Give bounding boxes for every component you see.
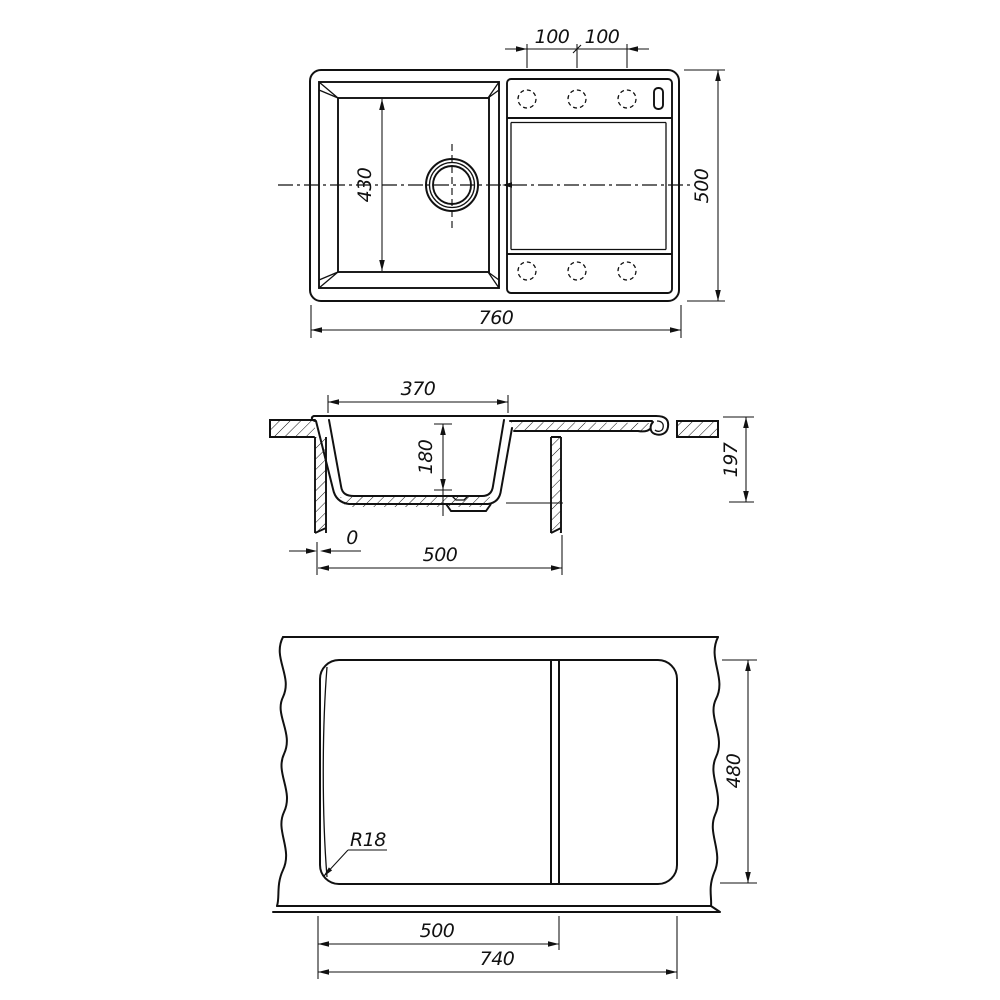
dim-hole-pitch-left: 100 [535,26,570,48]
dim-cabinet-width: 500 [423,544,458,566]
cutout-view: R18 480 500 740 [273,637,757,979]
dim-cutout-width: 740 [480,948,515,970]
overflow-slot [654,88,663,109]
technical-drawing-canvas: 100 100 430 500 760 [0,0,1000,1000]
countertop-outline [273,637,720,912]
break-line-left [277,637,287,906]
dim-divider-offset: 500 [420,920,455,942]
top-view: 100 100 430 500 760 [278,26,725,338]
dim-corner-radius: R18 [350,829,386,851]
break-line-right [711,637,720,906]
cutout-dimensions: 480 500 740 [318,660,757,979]
sink-section-profile [312,416,668,511]
cutout-divider [551,661,559,883]
radius-callout: R18 [323,829,387,877]
drain-hole [426,144,478,228]
dim-edge-offset: 0 [346,527,358,549]
top-view-dimensions: 100 100 430 500 760 [311,26,725,338]
dim-overall-depth: 500 [691,168,713,203]
dim-overall-length: 760 [479,307,514,329]
cutout-left-edge-detail [323,667,327,877]
section-view: 370 180 197 0 500 [270,378,754,575]
drawing-page: 100 100 430 500 760 [0,0,1000,1000]
dim-bowl-depth: 180 [415,439,437,474]
dim-overall-height: 197 [720,442,742,477]
dim-cutout-depth: 480 [723,753,745,788]
dim-hole-pitch-right: 100 [585,26,620,48]
drainboard [507,79,672,293]
dim-bowl-length: 430 [354,167,376,202]
section-dimensions: 370 180 197 0 500 [289,378,754,575]
dim-bowl-top-width: 370 [401,378,436,400]
